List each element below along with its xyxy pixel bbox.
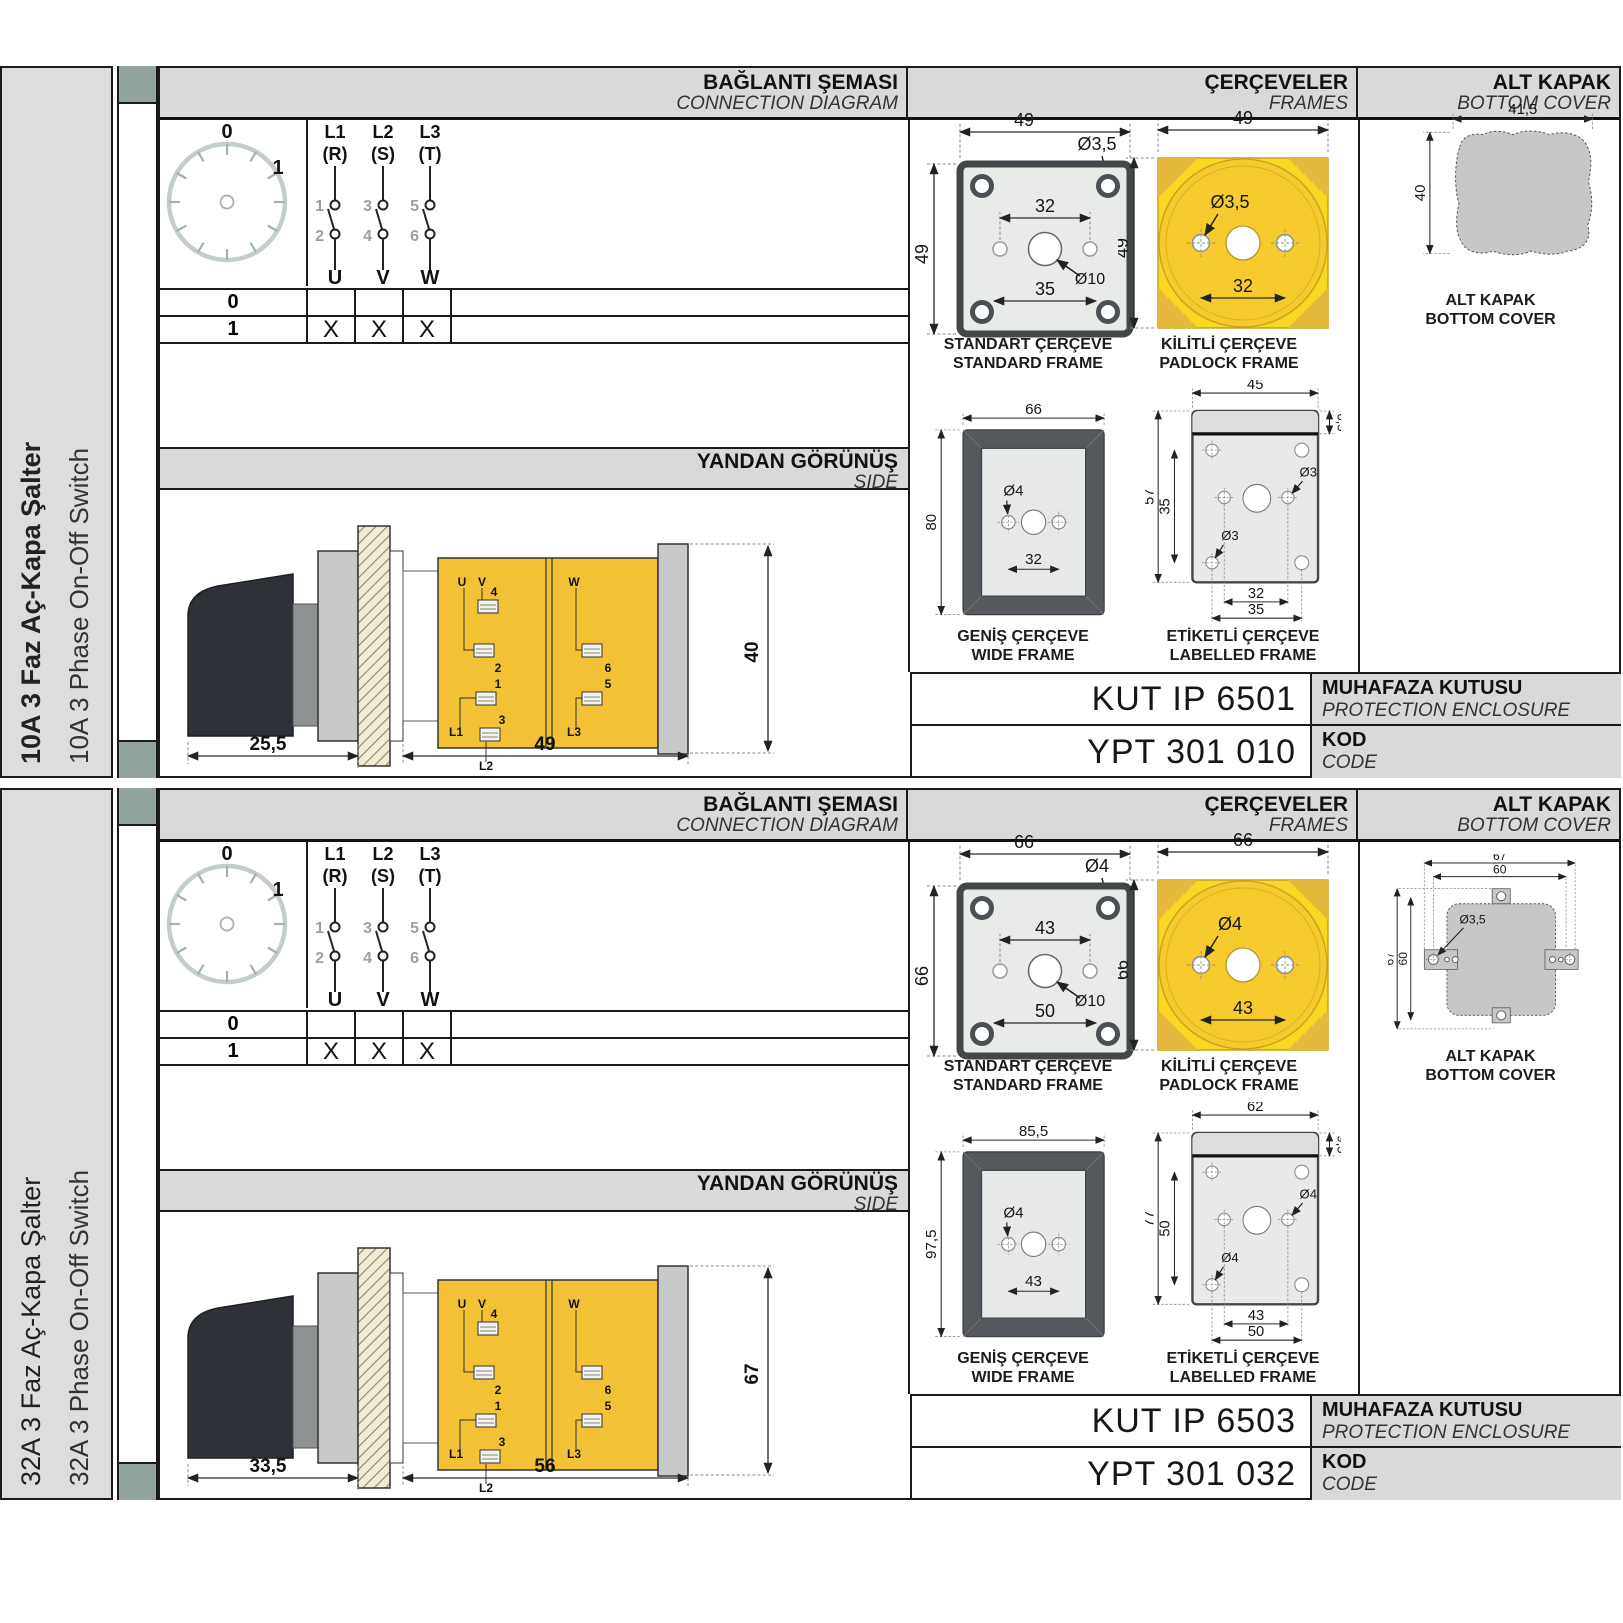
header-en: SIDE xyxy=(160,1195,898,1215)
contact-number-top: 1 xyxy=(315,198,324,215)
bottom-cover-label: ALT KAPAK BOTTOM COVER xyxy=(1360,1048,1621,1086)
line-l1-label: L1 xyxy=(449,1447,463,1461)
dim-height: 67 xyxy=(742,1363,763,1384)
product-title-english: 10A 3 Phase On-Off Switch xyxy=(64,448,95,764)
column-divider xyxy=(908,842,910,1394)
switch-body xyxy=(438,1280,658,1470)
label-tr: MUHAFAZA KUTUSU xyxy=(1322,1399,1611,1422)
sidebar: 10A 3 Faz Aç-Kapa Şalter 10A 3 Phase On-… xyxy=(0,66,113,778)
product-section: 10A 3 Faz Aç-Kapa Şalter 10A 3 Phase On-… xyxy=(0,66,1623,778)
terminal-v-label: V xyxy=(478,575,486,589)
header-en: CONNECTION DIAGRAM xyxy=(160,94,898,114)
header-tr: ALT KAPAK xyxy=(1358,71,1611,94)
side-view-drawing: U V 4 2 1 3 L1 L2 W 6 5 L3 33,5 56 67 xyxy=(168,1218,808,1498)
terminal-3-label: 3 xyxy=(499,1435,506,1449)
binder-tab-top xyxy=(119,66,156,104)
switch-contacts-drawing: L1 (R) 1 2 U L2 (S) 3 4 V xyxy=(308,842,908,1008)
switch-position-table: 0 1 X X X xyxy=(160,1012,910,1066)
dial-position-0: 0 xyxy=(221,121,232,143)
column-headers: BAĞLANTI ŞEMASI CONNECTION DIAGRAM ÇERÇE… xyxy=(160,790,1619,842)
label-tr: KİLİTLİ ÇERÇEVE xyxy=(1116,336,1342,355)
enclosure-code: KUT IP 6501 xyxy=(912,674,1310,724)
table-row: 1 X X X xyxy=(160,1039,908,1066)
dim-inner-spacing: 32 xyxy=(1248,586,1264,602)
side-view-header: YANDAN GÖRÜNÜŞ SIDE xyxy=(160,447,910,490)
terminal-label: U xyxy=(328,267,342,286)
label-en: LABELLED FRAME xyxy=(1136,1369,1350,1388)
header-tr: YANDAN GÖRÜNÜŞ xyxy=(160,1172,898,1195)
padlock-frame-label: KİLİTLİ ÇERÇEVE PADLOCK FRAME xyxy=(1116,1058,1342,1096)
dim-screw-hole: Ø4 xyxy=(1218,914,1242,934)
contact-state-w xyxy=(404,1012,452,1037)
label-en: PADLOCK FRAME xyxy=(1116,1077,1342,1096)
position-cell: 0 xyxy=(160,290,308,315)
labelled-frame-drawing: 45 6,5 57 35 Ø3 Ø xyxy=(1145,380,1341,628)
dim-frame-height: 49 xyxy=(914,244,932,264)
dial-position-0: 0 xyxy=(221,843,232,865)
table-row: 0 xyxy=(160,290,908,317)
dim-body-depth: 56 xyxy=(534,1456,555,1477)
dim-inner-spacing: 43 xyxy=(1248,1308,1264,1324)
dim-hole-spacing: 32 xyxy=(1233,276,1253,296)
contact-number-bottom: 2 xyxy=(315,950,324,967)
dim-frame-height: 66 xyxy=(914,966,932,986)
contact-state-v xyxy=(356,290,404,315)
panel-cross-section xyxy=(358,1248,390,1488)
phase-alt-label: (T) xyxy=(419,144,442,164)
contact-state-v: X xyxy=(356,317,404,342)
contact-number-top: 5 xyxy=(410,198,419,215)
label-tr: ALT KAPAK xyxy=(1360,292,1621,311)
terminal-4-label: 4 xyxy=(491,1307,498,1321)
contact-number-top: 3 xyxy=(363,920,372,937)
position-cell: 1 xyxy=(160,1039,308,1064)
dim-band-height: 9,5 xyxy=(1335,1135,1341,1153)
phase-alt-label: (S) xyxy=(371,866,395,886)
bottom-cover-drawing: 67 60 67 60 xyxy=(1388,854,1579,1044)
dim-frame-width: 85,5 xyxy=(1019,1125,1048,1140)
dim-shaft-hole: Ø10 xyxy=(1075,271,1105,288)
terminal-1-label: 1 xyxy=(495,1399,502,1413)
contact-state-u xyxy=(308,290,356,315)
dim-inner-height: 35 xyxy=(1158,498,1174,514)
phase-line-label: L3 xyxy=(419,844,440,864)
connection-diagram-box: 0 1 L1 (R) 1 2 U L2 (S) xyxy=(160,120,910,290)
binder-tab-bottom xyxy=(119,740,156,778)
dim-hole-right: Ø4 xyxy=(1300,1186,1317,1201)
mounting-plate xyxy=(318,551,358,741)
standard-frame-label: STANDART ÇERÇEVE STANDARD FRAME xyxy=(908,1058,1148,1096)
header-tr: ÇERÇEVELER xyxy=(908,71,1348,94)
table-row: 1 X X X xyxy=(160,317,908,344)
dim-frame-width: 49 xyxy=(1233,108,1253,128)
dim-shaft-hole: Ø10 xyxy=(1075,993,1105,1010)
label-tr: ETİKETLİ ÇERÇEVE xyxy=(1136,1350,1350,1369)
dim-cover-width: 41,5 xyxy=(1508,104,1537,118)
dial-cell: 0 1 xyxy=(160,120,308,286)
dim-frame-height: 80 xyxy=(926,514,940,531)
empty-cell xyxy=(452,1012,908,1037)
labelled-frame-label: ETİKETLİ ÇERÇEVE LABELLED FRAME xyxy=(1136,628,1350,666)
padlock-frame-label: KİLİTLİ ÇERÇEVE PADLOCK FRAME xyxy=(1116,336,1342,374)
empty-cell xyxy=(452,290,908,315)
terminal-3-label: 3 xyxy=(499,713,506,727)
wide-frame-drawing: 85,5 97,5 Ø4 43 xyxy=(926,1125,1121,1345)
product-section: 32A 3 Faz Aç-Kapa Şalter 32A 3 Phase On-… xyxy=(0,788,1623,1500)
terminal-6-label: 6 xyxy=(605,1383,612,1397)
label-en: WIDE FRAME xyxy=(916,647,1130,666)
label-en: CODE xyxy=(1322,1474,1611,1496)
contact-state-w: X xyxy=(404,317,452,342)
contact-state-u: X xyxy=(308,1039,356,1064)
switch-handle xyxy=(188,1296,293,1458)
terminal-label: V xyxy=(376,267,390,286)
dim-hole-spacing: 32 xyxy=(1025,551,1042,568)
dim-cover-inner-width: 60 xyxy=(1493,863,1507,877)
line-l1-label: L1 xyxy=(449,725,463,739)
dim-outer-spacing: 50 xyxy=(1248,1324,1264,1340)
header-tr: BAĞLANTI ŞEMASI xyxy=(160,71,898,94)
phase-line-label: L2 xyxy=(372,122,393,142)
wide-frame-drawing: 66 80 Ø4 32 xyxy=(926,403,1121,623)
empty-cell xyxy=(452,1039,908,1064)
product-code-row: YPT 301 010 KOD CODE xyxy=(912,726,1621,778)
label-en: BOTTOM COVER xyxy=(1360,1067,1621,1086)
dim-handle-depth: 25,5 xyxy=(250,734,287,755)
column-divider xyxy=(908,120,910,672)
terminal-5-label: 5 xyxy=(605,677,612,691)
rotary-dial-drawing: 0 1 xyxy=(160,120,306,286)
enclosure-code-row: KUT IP 6503 MUHAFAZA KUTUSU PROTECTION E… xyxy=(912,1396,1621,1448)
header-en: CONNECTION DIAGRAM xyxy=(160,816,898,836)
phase-line-label: L1 xyxy=(324,122,345,142)
enclosure-code-row: KUT IP 6501 MUHAFAZA KUTUSU PROTECTION E… xyxy=(912,674,1621,726)
label-en: STANDARD FRAME xyxy=(908,355,1148,374)
label-en: CODE xyxy=(1322,752,1611,774)
header-en: SIDE xyxy=(160,473,898,493)
label-tr: STANDART ÇERÇEVE xyxy=(908,336,1148,355)
contact-state-u xyxy=(308,1012,356,1037)
connection-diagram-header: BAĞLANTI ŞEMASI CONNECTION DIAGRAM xyxy=(160,790,908,839)
panel-cross-section xyxy=(358,526,390,766)
terminal-1-label: 1 xyxy=(495,677,502,691)
labelled-frame-label: ETİKETLİ ÇERÇEVE LABELLED FRAME xyxy=(1136,1350,1350,1388)
sidebar: 32A 3 Faz Aç-Kapa Şalter 32A 3 Phase On-… xyxy=(0,788,113,1500)
contact-number-bottom: 6 xyxy=(410,950,419,967)
cover-outline xyxy=(1456,131,1592,255)
wide-frame-label: GENİŞ ÇERÇEVE WIDE FRAME xyxy=(916,628,1130,666)
wide-frame-label: GENİŞ ÇERÇEVE WIDE FRAME xyxy=(916,1350,1130,1388)
dim-frame-width: 45 xyxy=(1247,380,1263,393)
dim-cover-hole: Ø3,5 xyxy=(1460,912,1486,926)
contact-number-top: 5 xyxy=(410,920,419,937)
terminal-label: W xyxy=(421,267,440,286)
phase-line-label: L1 xyxy=(324,844,345,864)
phase-line-label: L2 xyxy=(372,844,393,864)
standard-frame-drawing: 66 Ø4 66 43 Ø10 50 xyxy=(914,830,1142,1064)
binder-tab-top xyxy=(119,788,156,826)
dim-outer-spacing: 35 xyxy=(1035,279,1055,299)
terminal-u-label: U xyxy=(458,1297,467,1311)
dim-hole-spacing: 43 xyxy=(1025,1273,1042,1290)
dim-inner-spacing: 43 xyxy=(1035,918,1055,938)
contact-number-bottom: 2 xyxy=(315,228,324,245)
enclosure-code: KUT IP 6503 xyxy=(912,1396,1310,1446)
dim-frame-width: 66 xyxy=(1025,403,1042,418)
dim-inner-height: 50 xyxy=(1158,1220,1174,1236)
dim-frame-height: 49 xyxy=(1118,238,1132,258)
mounting-plate xyxy=(318,1273,358,1463)
empty-cell xyxy=(452,317,908,342)
dim-outer-spacing: 50 xyxy=(1035,1001,1055,1021)
product-code: YPT 301 010 xyxy=(912,726,1310,778)
connection-diagram-header: BAĞLANTI ŞEMASI CONNECTION DIAGRAM xyxy=(160,68,908,117)
product-title-english: 32A 3 Phase On-Off Switch xyxy=(64,1170,95,1486)
line-l3-label: L3 xyxy=(567,725,581,739)
contact-state-v xyxy=(356,1012,404,1037)
padlock-frame-drawing: 66 66 Ø4 43 xyxy=(1118,830,1340,1064)
dim-cover-outer-height: 67 xyxy=(1388,952,1396,966)
dim-screw-hole: Ø3,5 xyxy=(1210,192,1249,212)
header-tr: ÇERÇEVELER xyxy=(908,793,1348,816)
contact-state-v: X xyxy=(356,1039,404,1064)
product-code: YPT 301 032 xyxy=(912,1448,1310,1500)
terminal-u-label: U xyxy=(458,575,467,589)
label-en: STANDARD FRAME xyxy=(908,1077,1148,1096)
terminal-w-label: W xyxy=(568,1297,580,1311)
dim-height: 40 xyxy=(742,641,763,662)
dim-handle-depth: 33,5 xyxy=(250,1456,287,1477)
contact-number-bottom: 6 xyxy=(410,228,419,245)
dim-frame-height: 97,5 xyxy=(926,1230,940,1259)
end-plate xyxy=(658,1266,688,1476)
dim-cover-outer-width: 67 xyxy=(1493,854,1507,863)
label-tr: GENİŞ ÇERÇEVE xyxy=(916,628,1130,647)
dial-position-1: 1 xyxy=(272,879,283,901)
phase-alt-label: (R) xyxy=(323,144,348,164)
phase-alt-label: (S) xyxy=(371,144,395,164)
contact-state-w xyxy=(404,290,452,315)
bottom-cover-header: ALT KAPAK BOTTOM COVER xyxy=(1358,790,1619,839)
product-title-turkish: 32A 3 Faz Aç-Kapa Şalter xyxy=(16,1177,47,1486)
dim-frame-height: 77 xyxy=(1145,1210,1157,1226)
terminal-2-label: 2 xyxy=(495,1383,502,1397)
dim-hole-spacing: 43 xyxy=(1233,998,1253,1018)
product-title-turkish: 10A 3 Faz Aç-Kapa Şalter xyxy=(16,442,47,764)
column-divider xyxy=(1358,842,1360,1394)
terminal-w-label: W xyxy=(568,575,580,589)
label-en: WIDE FRAME xyxy=(916,1369,1130,1388)
phase-line-label: L3 xyxy=(419,122,440,142)
dim-cover-height: 40 xyxy=(1412,185,1429,202)
dim-frame-width: 49 xyxy=(1014,110,1034,130)
line-l2-label: L2 xyxy=(479,1481,493,1495)
terminal-6-label: 6 xyxy=(605,661,612,675)
binder-strip xyxy=(117,788,158,1500)
standard-frame-drawing: 49 Ø3,5 49 32 Ø10 35 xyxy=(914,108,1142,342)
connection-diagram-box: 0 1 L1 (R) 1 2 U L2 (S) xyxy=(160,842,910,1012)
line-l3-label: L3 xyxy=(567,1447,581,1461)
contact-state-u: X xyxy=(308,317,356,342)
header-tr: BAĞLANTI ŞEMASI xyxy=(160,793,898,816)
terminal-2-label: 2 xyxy=(495,661,502,675)
section-main: BAĞLANTI ŞEMASI CONNECTION DIAGRAM ÇERÇE… xyxy=(158,788,1621,1500)
dim-screw-hole: Ø3,5 xyxy=(1077,134,1116,154)
terminal-4-label: 4 xyxy=(491,585,498,599)
label-tr: ALT KAPAK xyxy=(1360,1048,1621,1067)
binder-strip xyxy=(117,66,158,778)
phase-alt-label: (R) xyxy=(323,866,348,886)
contact-state-w: X xyxy=(404,1039,452,1064)
label-en: BOTTOM COVER xyxy=(1360,311,1621,330)
terminal-v-label: V xyxy=(478,1297,486,1311)
product-code-label: KOD CODE xyxy=(1310,726,1621,778)
contact-number-top: 3 xyxy=(363,198,372,215)
column-divider xyxy=(1358,120,1360,672)
terminal-5-label: 5 xyxy=(605,1399,612,1413)
position-cell: 0 xyxy=(160,1012,308,1037)
terminal-label: V xyxy=(376,989,390,1008)
label-tr: KOD xyxy=(1322,1451,1611,1474)
label-en: PROTECTION ENCLOSURE xyxy=(1322,1422,1611,1444)
table-row: 0 xyxy=(160,1012,908,1039)
product-codes-box: KUT IP 6501 MUHAFAZA KUTUSU PROTECTION E… xyxy=(910,672,1621,776)
end-plate xyxy=(658,544,688,754)
dim-frame-height: 66 xyxy=(1118,960,1132,980)
dim-inner-spacing: 32 xyxy=(1035,196,1055,216)
dim-screw-hole: Ø4 xyxy=(1085,856,1109,876)
side-view-drawing: U V 4 2 1 3 L1 L2 W 6 5 L3 25,5 49 40 xyxy=(168,496,808,776)
contact-number-bottom: 4 xyxy=(363,228,372,245)
bottom-cover-label: ALT KAPAK BOTTOM COVER xyxy=(1360,292,1621,330)
label-tr: STANDART ÇERÇEVE xyxy=(908,1058,1148,1077)
terminal-label: U xyxy=(328,989,342,1008)
dim-screw-hole: Ø4 xyxy=(1003,1204,1023,1221)
section-main: BAĞLANTI ŞEMASI CONNECTION DIAGRAM ÇERÇE… xyxy=(158,66,1621,778)
position-cell: 1 xyxy=(160,317,308,342)
dim-band-height: 6,5 xyxy=(1335,413,1341,431)
product-code-row: YPT 301 032 KOD CODE xyxy=(912,1448,1621,1500)
header-tr: YANDAN GÖRÜNÜŞ xyxy=(160,450,898,473)
label-en: PADLOCK FRAME xyxy=(1116,355,1342,374)
line-l2-label: L2 xyxy=(479,759,493,773)
rotary-dial-drawing: 0 1 xyxy=(160,842,306,1008)
switch-body xyxy=(438,558,658,748)
dim-frame-width: 66 xyxy=(1233,830,1253,850)
header-en: BOTTOM COVER xyxy=(1358,816,1611,836)
dial-position-1: 1 xyxy=(272,157,283,179)
dim-body-depth: 49 xyxy=(534,734,555,755)
label-tr: KİLİTLİ ÇERÇEVE xyxy=(1116,1058,1342,1077)
header-tr: ALT KAPAK xyxy=(1358,793,1611,816)
label-tr: KOD xyxy=(1322,729,1611,752)
contact-number-top: 1 xyxy=(315,920,324,937)
label-tr: MUHAFAZA KUTUSU xyxy=(1322,677,1611,700)
product-code-label: KOD CODE xyxy=(1310,1448,1621,1500)
side-view-header: YANDAN GÖRÜNÜŞ SIDE xyxy=(160,1169,910,1212)
bottom-cover-drawing: 41,5 40 xyxy=(1395,104,1605,266)
terminal-label: W xyxy=(421,989,440,1008)
phase-alt-label: (T) xyxy=(419,866,442,886)
switch-handle xyxy=(188,574,293,736)
dim-screw-hole: Ø4 xyxy=(1003,482,1023,499)
contact-number-bottom: 4 xyxy=(363,950,372,967)
dim-hole-right: Ø3 xyxy=(1300,464,1317,479)
label-en: PROTECTION ENCLOSURE xyxy=(1322,700,1611,722)
dim-outer-spacing: 35 xyxy=(1248,602,1264,618)
dim-frame-width: 66 xyxy=(1014,832,1034,852)
label-en: LABELLED FRAME xyxy=(1136,647,1350,666)
labelled-frame-drawing: 62 9,5 77 50 Ø4 Ø xyxy=(1145,1102,1341,1350)
dial-cell: 0 1 xyxy=(160,842,308,1008)
label-tr: ETİKETLİ ÇERÇEVE xyxy=(1136,628,1350,647)
enclosure-code-label: MUHAFAZA KUTUSU PROTECTION ENCLOSURE xyxy=(1310,674,1621,724)
switch-contacts-drawing: L1 (R) 1 2 U L2 (S) 3 4 V xyxy=(308,120,908,286)
padlock-frame-drawing: 49 49 Ø3,5 32 xyxy=(1118,108,1340,342)
dim-cover-inner-height: 60 xyxy=(1396,952,1410,966)
label-tr: GENİŞ ÇERÇEVE xyxy=(916,1350,1130,1369)
dim-frame-height: 57 xyxy=(1145,488,1157,504)
dim-frame-width: 62 xyxy=(1247,1102,1263,1115)
standard-frame-label: STANDART ÇERÇEVE STANDARD FRAME xyxy=(908,336,1148,374)
binder-tab-bottom xyxy=(119,1462,156,1500)
switch-position-table: 0 1 X X X xyxy=(160,290,910,344)
product-codes-box: KUT IP 6503 MUHAFAZA KUTUSU PROTECTION E… xyxy=(910,1394,1621,1498)
enclosure-code-label: MUHAFAZA KUTUSU PROTECTION ENCLOSURE xyxy=(1310,1396,1621,1446)
